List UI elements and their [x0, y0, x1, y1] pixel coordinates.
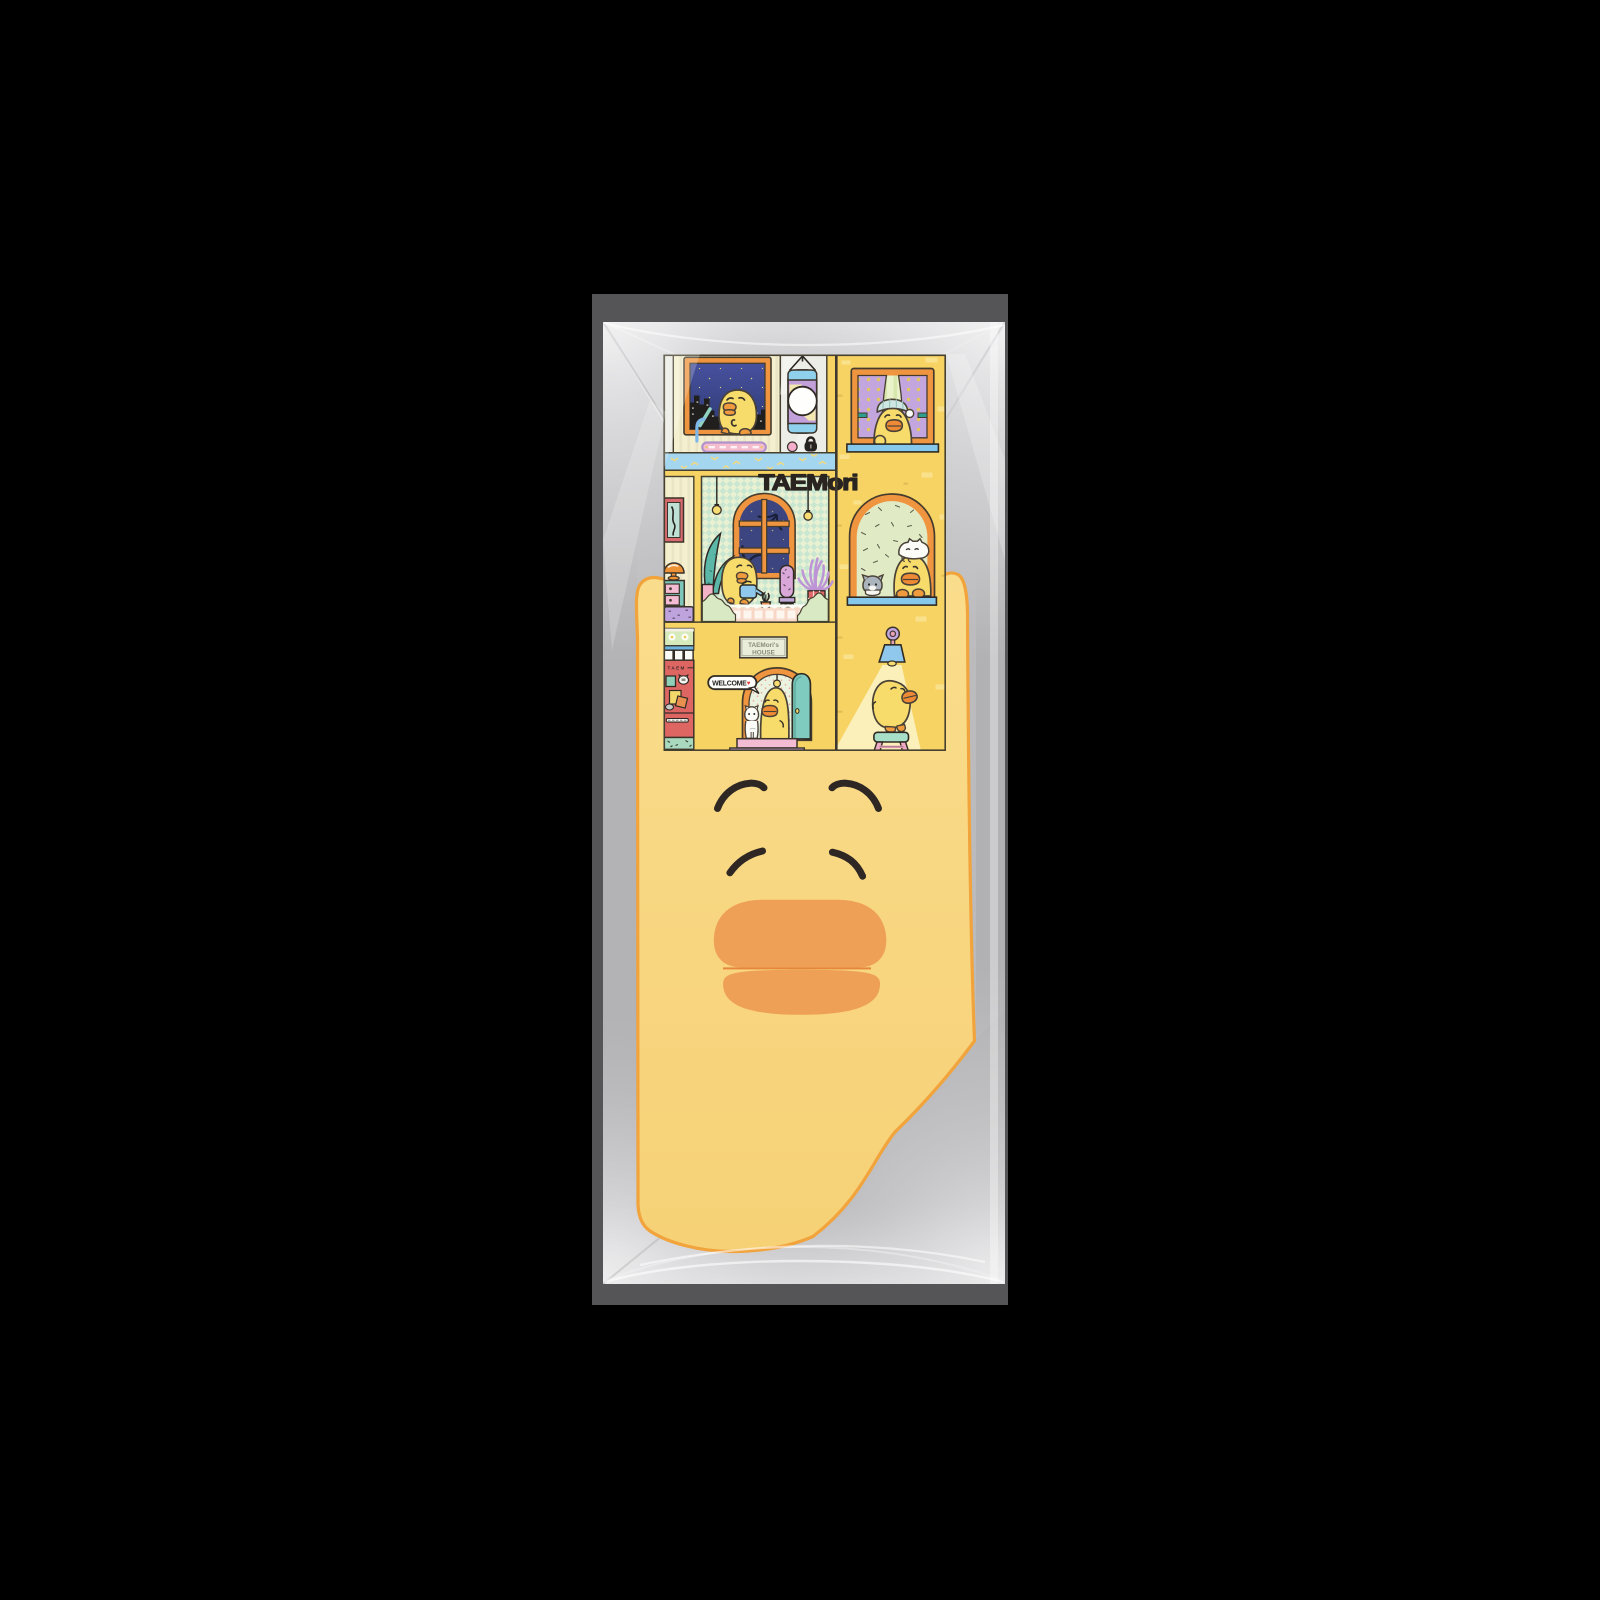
svg-text:TAEM: TAEM — [668, 666, 686, 671]
svg-text:TAEMori: TAEMori — [759, 470, 858, 495]
svg-text:HOUSE: HOUSE — [752, 649, 775, 656]
svg-text:♥: ♥ — [747, 680, 751, 687]
svg-text:TAEMori's: TAEMori's — [748, 642, 779, 649]
svg-text:WELCOME: WELCOME — [712, 680, 747, 687]
